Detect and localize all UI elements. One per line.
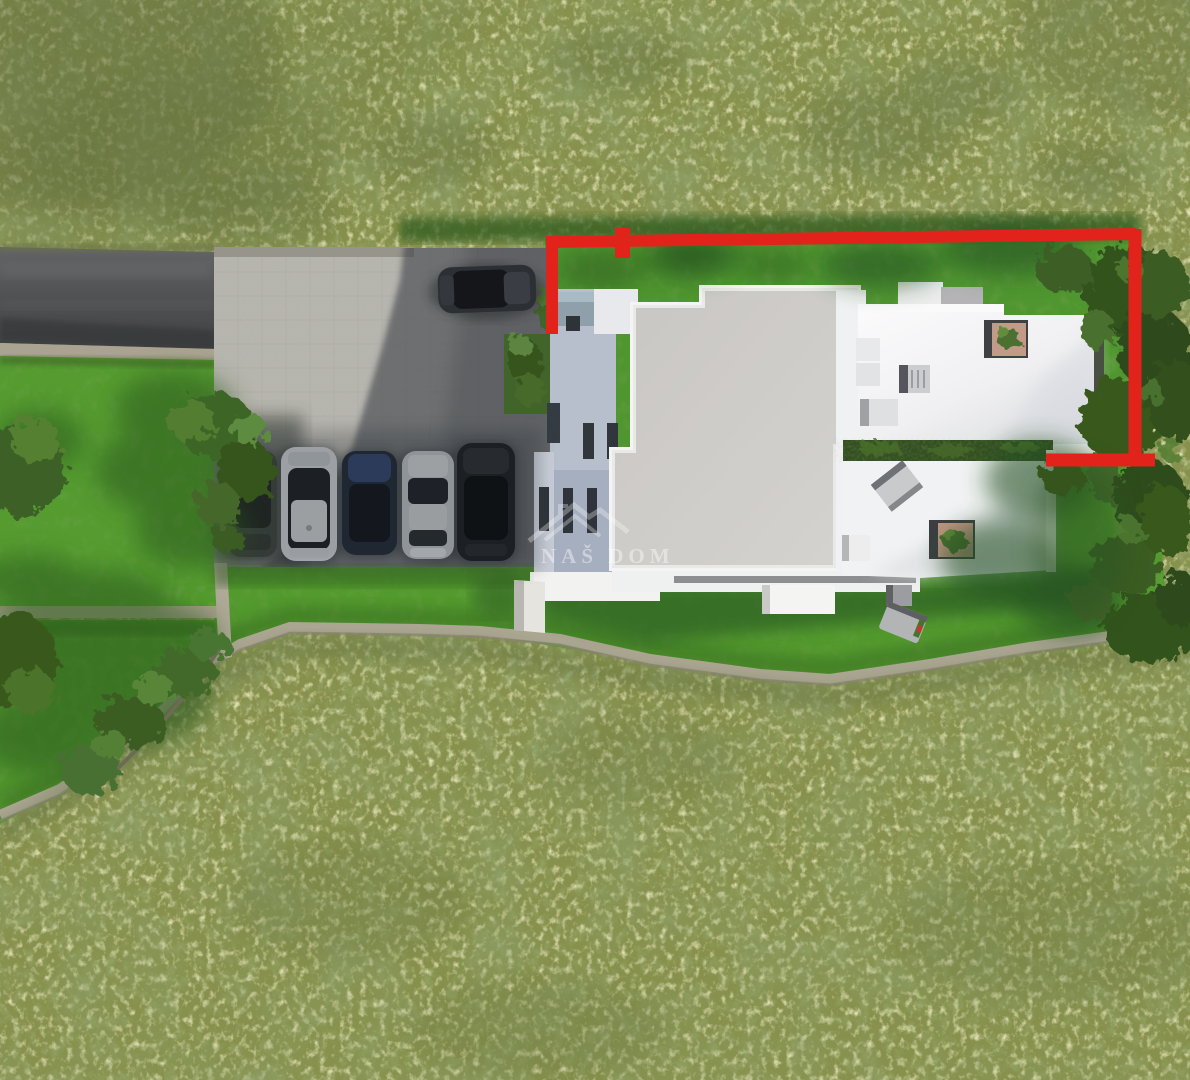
svg-text:NAŠ DOM: NAŠ DOM [541, 544, 675, 568]
